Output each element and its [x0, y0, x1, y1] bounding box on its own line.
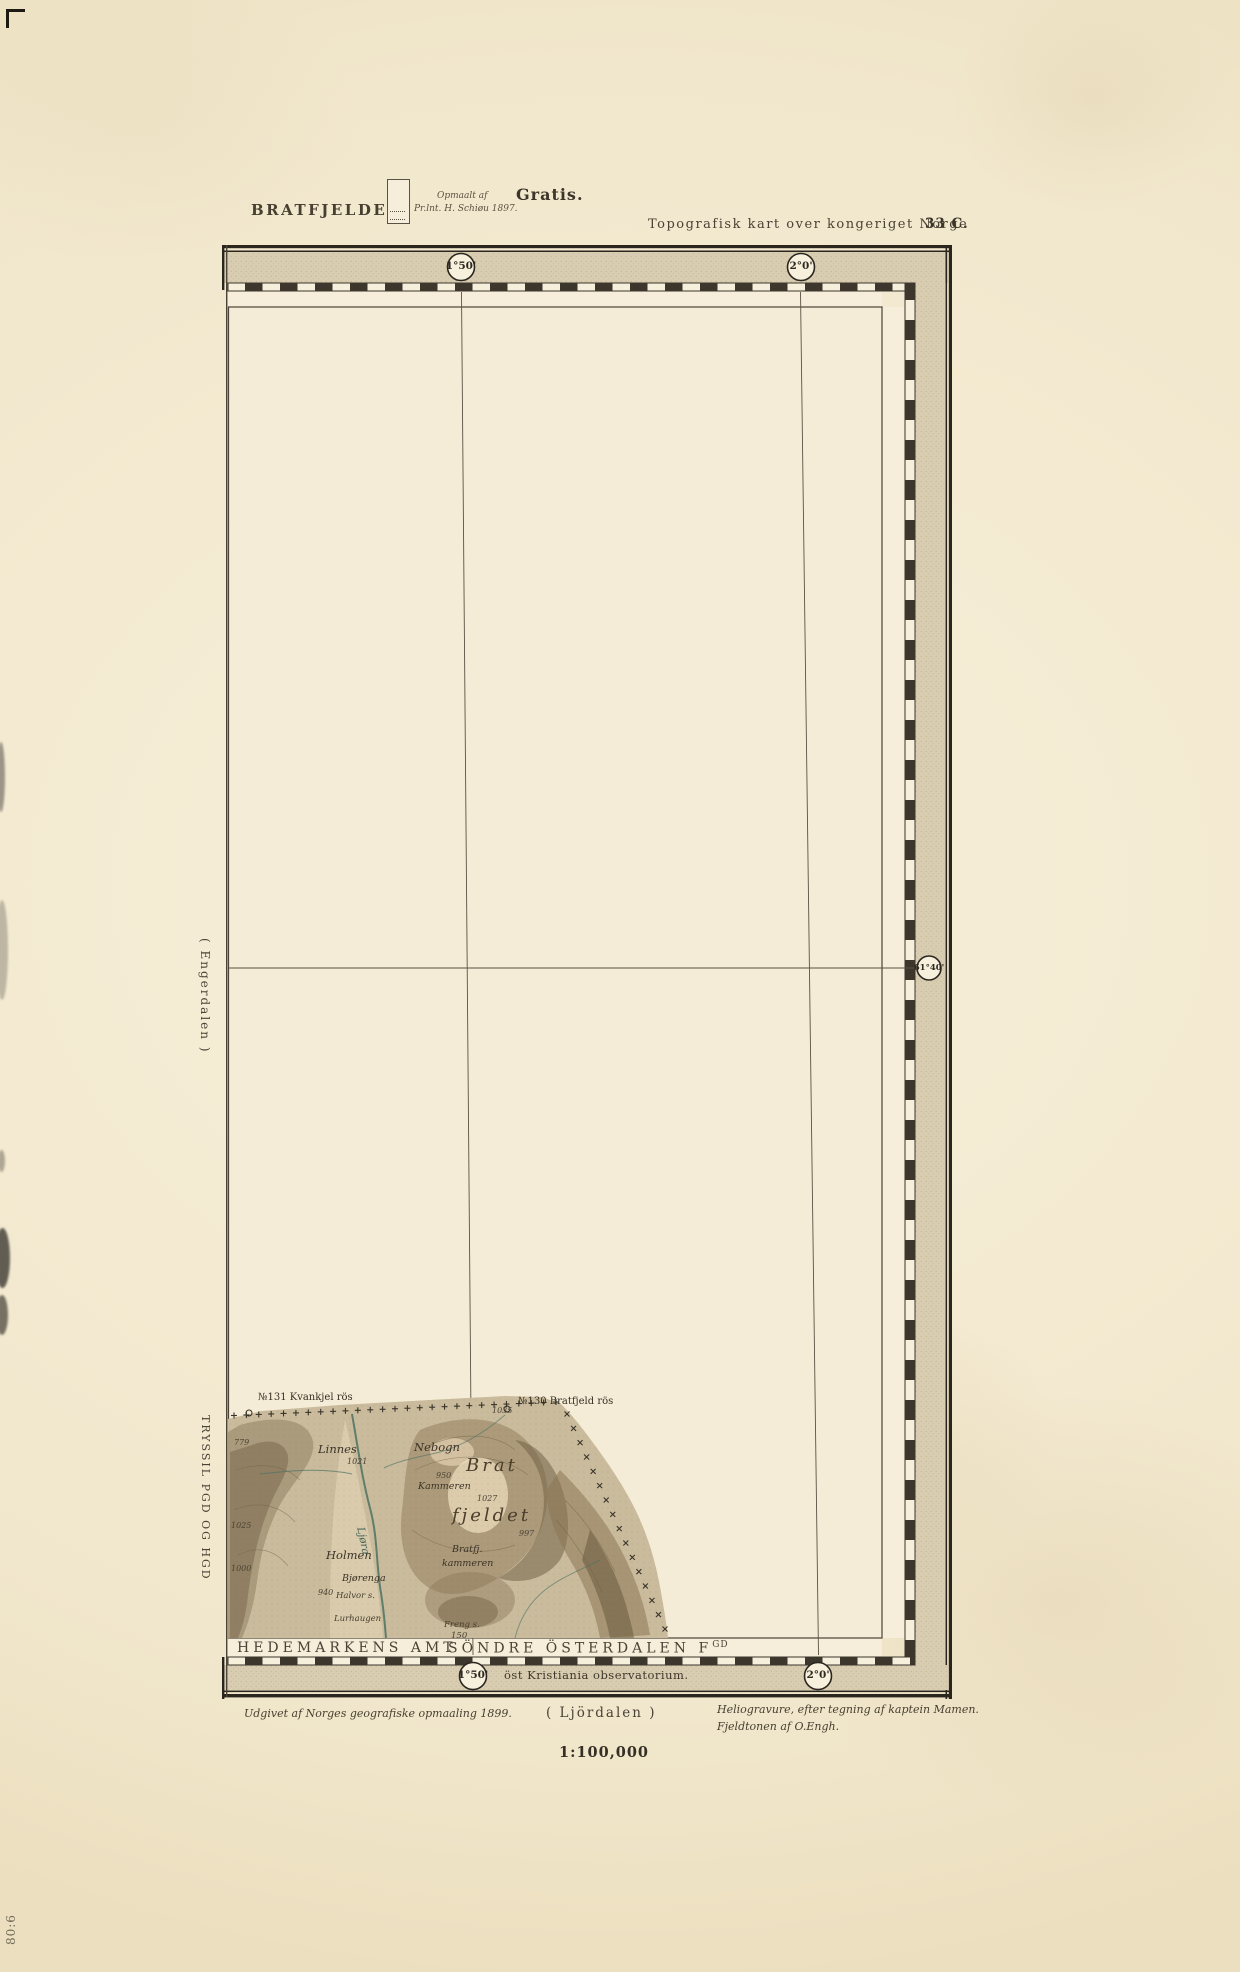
terrain-label: Bratfj. [452, 1544, 483, 1555]
terrain-label: Nebogn [414, 1440, 460, 1454]
terrain-label: 150 [451, 1631, 467, 1641]
terrain-label: 779 [234, 1438, 249, 1447]
terrain-label: 1035 [492, 1406, 512, 1415]
terrain-label: Freng s. [444, 1620, 480, 1630]
terrain-label: Brat [466, 1455, 518, 1476]
terrain-label: 1000 [231, 1564, 251, 1573]
terrain-label: Lurhaugen [334, 1614, 381, 1624]
terrain-label: 997 [519, 1529, 534, 1538]
terrain-label: 1025 [231, 1521, 251, 1530]
handwritten-archive-number: 80:6 [4, 1914, 18, 1945]
terrain-label: Kammeren [418, 1481, 471, 1492]
terrain-label: Linnes [318, 1442, 357, 1456]
terrain-label: 1027 [477, 1494, 497, 1503]
corner-registration-mark [6, 9, 25, 28]
terrain-label: Halvor s. [336, 1591, 375, 1601]
terrain-labels: №131 Kvankjel rös№130 Bratfjeld rös10357… [0, 0, 1240, 1972]
terrain-label: 940 [318, 1588, 333, 1597]
terrain-label: №130 Bratfjeld rös [518, 1396, 613, 1407]
terrain-label: fjeldet [452, 1505, 531, 1526]
terrain-label: 950 [436, 1471, 451, 1480]
terrain-label: Bjørenga [342, 1573, 386, 1584]
map-sheet-scan: Opmaalt af Pr.lnt. H. Schiøu 1897. Grati… [0, 0, 1240, 1972]
terrain-label: №131 Kvankjel rös [258, 1392, 353, 1403]
terrain-label: kammeren [442, 1558, 493, 1569]
terrain-label: 1021 [347, 1457, 367, 1466]
